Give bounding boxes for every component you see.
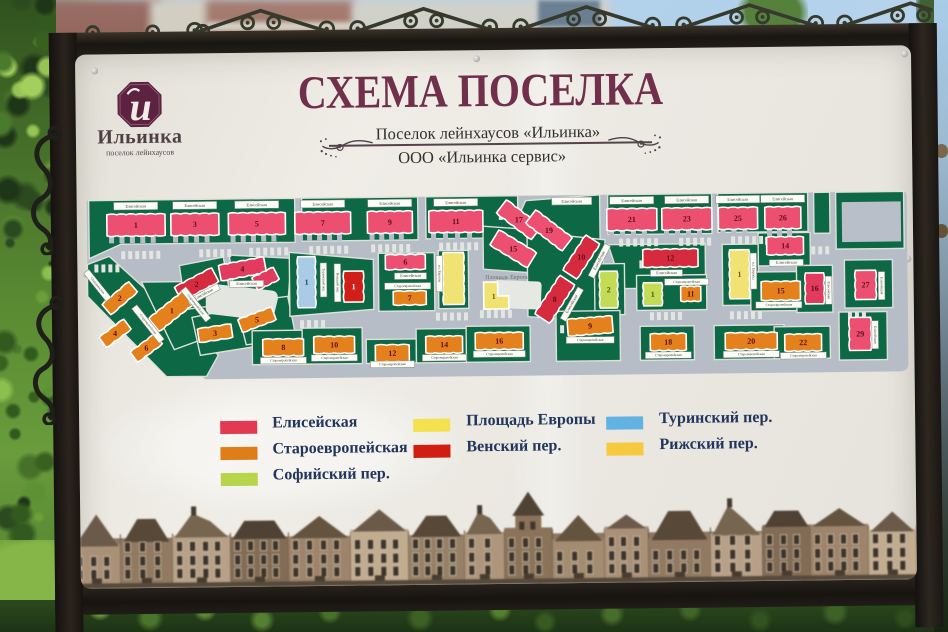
svg-text:пл. Европы: пл. Европы [437, 265, 441, 283]
svg-text:Староевропейская: Староевропейская [379, 362, 406, 366]
svg-text:1: 1 [352, 282, 356, 291]
svg-text:15: 15 [509, 244, 517, 253]
svg-text:1: 1 [737, 270, 741, 279]
svg-text:11: 11 [452, 217, 460, 226]
svg-text:19: 19 [545, 226, 553, 235]
svg-text:Староевропейская: Староевропейская [394, 284, 421, 288]
svg-text:6: 6 [144, 344, 148, 353]
svg-text:Елисейская: Елисейская [236, 281, 257, 286]
svg-text:1: 1 [305, 278, 309, 287]
svg-text:Елисейская: Елисейская [184, 203, 205, 208]
svg-text:6: 6 [403, 258, 407, 267]
svg-text:Туринский пер.: Туринский пер. [321, 268, 325, 292]
svg-text:7: 7 [321, 219, 325, 228]
svg-text:Староевропейская: Староевропейская [655, 353, 682, 357]
svg-text:4: 4 [240, 264, 244, 273]
svg-text:20: 20 [747, 337, 755, 346]
svg-text:Елисейская: Елисейская [772, 196, 793, 201]
svg-text:Елисейская: Елисейская [656, 270, 677, 275]
svg-text:3: 3 [213, 329, 217, 338]
svg-text:Староевропейская: Староевропейская [486, 352, 513, 356]
svg-text:25: 25 [734, 214, 742, 223]
svg-text:1: 1 [651, 290, 655, 299]
svg-text:9: 9 [588, 322, 592, 331]
svg-text:14: 14 [781, 241, 789, 250]
svg-text:7: 7 [408, 294, 412, 303]
svg-text:Староевропейская: Староевропейская [790, 353, 817, 357]
svg-text:Староевропейская: Староевропейская [673, 280, 700, 284]
svg-text:1: 1 [492, 292, 496, 301]
svg-text:Елисейская: Елисейская [827, 281, 831, 299]
svg-text:12: 12 [388, 349, 396, 358]
svg-text:16: 16 [811, 284, 819, 293]
svg-text:Елисейская: Елисейская [880, 277, 884, 295]
svg-text:Венский пер.: Венский пер. [335, 273, 339, 293]
svg-text:Елисейская: Елисейская [246, 202, 267, 207]
svg-text:Староевропейская: Староевропейская [577, 338, 604, 342]
svg-text:Елисейская: Елисейская [445, 200, 466, 205]
svg-text:Староевропейская: Староевропейская [321, 356, 348, 360]
svg-text:1: 1 [134, 221, 138, 230]
svg-text:Площадь Европы: Площадь Европы [485, 275, 530, 282]
svg-text:Елисейская: Елисейская [776, 260, 797, 265]
svg-text:Староевропейская: Староевропейская [766, 303, 793, 307]
svg-text:3: 3 [193, 220, 197, 229]
svg-text:2: 2 [195, 280, 199, 289]
svg-text:23: 23 [683, 214, 691, 223]
svg-text:Елисейская: Елисейская [400, 273, 421, 278]
svg-text:5: 5 [255, 315, 259, 324]
svg-text:Елисейская: Елисейская [125, 203, 146, 208]
svg-text:8: 8 [281, 343, 285, 352]
svg-text:22: 22 [799, 338, 807, 347]
svg-text:Елисейская: Елисейская [621, 198, 642, 203]
svg-text:21: 21 [628, 215, 636, 224]
svg-text:17: 17 [515, 215, 523, 224]
svg-text:Елисейская: Елисейская [379, 201, 400, 206]
svg-text:Елисейская: Елисейская [873, 326, 877, 344]
svg-text:16: 16 [495, 337, 503, 346]
svg-text:Елисейская: Елисейская [561, 199, 582, 204]
svg-text:2: 2 [118, 294, 122, 303]
svg-text:Староевропейская: Староевропейская [431, 355, 458, 359]
svg-text:14: 14 [440, 340, 448, 349]
svg-text:27: 27 [862, 280, 870, 289]
svg-text:29: 29 [856, 329, 864, 338]
svg-text:пл. Европы: пл. Европы [751, 262, 755, 280]
svg-text:4: 4 [113, 329, 117, 338]
svg-text:Елисейская: Елисейская [676, 197, 697, 202]
svg-text:2: 2 [607, 285, 611, 294]
svg-text:15: 15 [777, 286, 785, 295]
svg-text:11: 11 [687, 289, 695, 298]
svg-text:18: 18 [664, 338, 672, 347]
svg-text:8: 8 [553, 295, 557, 304]
svg-text:9: 9 [388, 218, 392, 227]
svg-text:5: 5 [255, 219, 259, 228]
svg-text:10: 10 [577, 253, 585, 262]
svg-text:26: 26 [779, 213, 787, 222]
svg-text:10: 10 [330, 340, 338, 349]
svg-text:Староевропейская: Староевропейская [738, 352, 765, 356]
svg-text:12: 12 [666, 254, 674, 263]
svg-text:Елисейская: Елисейская [312, 201, 333, 206]
svg-text:Елисейская: Елисейская [727, 197, 748, 202]
svg-text:Староевропейская: Староевропейская [270, 358, 297, 362]
svg-text:1: 1 [170, 306, 174, 315]
